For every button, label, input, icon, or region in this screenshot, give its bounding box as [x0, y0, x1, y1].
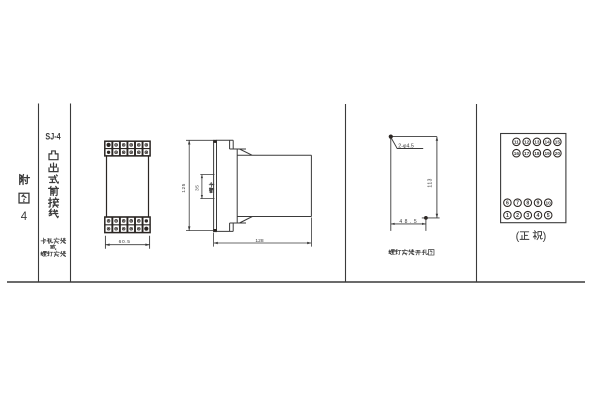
svg-text:7: 7 — [516, 201, 519, 207]
svg-text:60.5: 60.5 — [119, 239, 131, 245]
svg-text:6: 6 — [506, 201, 509, 207]
svg-text:10: 10 — [546, 200, 552, 206]
svg-text:125: 125 — [181, 183, 187, 192]
svg-text:): ) — [543, 231, 547, 243]
svg-text:18: 18 — [534, 151, 540, 157]
svg-text:128: 128 — [255, 238, 263, 244]
svg-text:4: 4 — [537, 213, 540, 219]
svg-text:(: ( — [516, 231, 520, 243]
svg-text:13: 13 — [534, 140, 540, 146]
svg-text:19: 19 — [544, 151, 550, 157]
svg-text:9: 9 — [537, 201, 540, 207]
svg-text:1: 1 — [506, 213, 509, 219]
svg-text:14: 14 — [544, 140, 550, 146]
svg-text:113: 113 — [427, 178, 433, 187]
svg-text:12: 12 — [524, 140, 530, 146]
svg-text:3: 3 — [526, 213, 529, 219]
svg-text:17: 17 — [524, 151, 530, 157]
svg-text:2: 2 — [516, 213, 519, 219]
svg-text:SJ-4: SJ-4 — [45, 132, 61, 142]
svg-text:11: 11 — [514, 140, 519, 146]
svg-text:16: 16 — [514, 151, 520, 157]
svg-text:15: 15 — [555, 140, 561, 146]
svg-text:8: 8 — [526, 201, 529, 207]
svg-text:35: 35 — [195, 185, 200, 191]
svg-text:4: 4 — [21, 211, 28, 223]
svg-text:2-φ4.5: 2-φ4.5 — [398, 143, 414, 149]
svg-text:5: 5 — [547, 213, 550, 219]
svg-text:20: 20 — [555, 151, 561, 157]
